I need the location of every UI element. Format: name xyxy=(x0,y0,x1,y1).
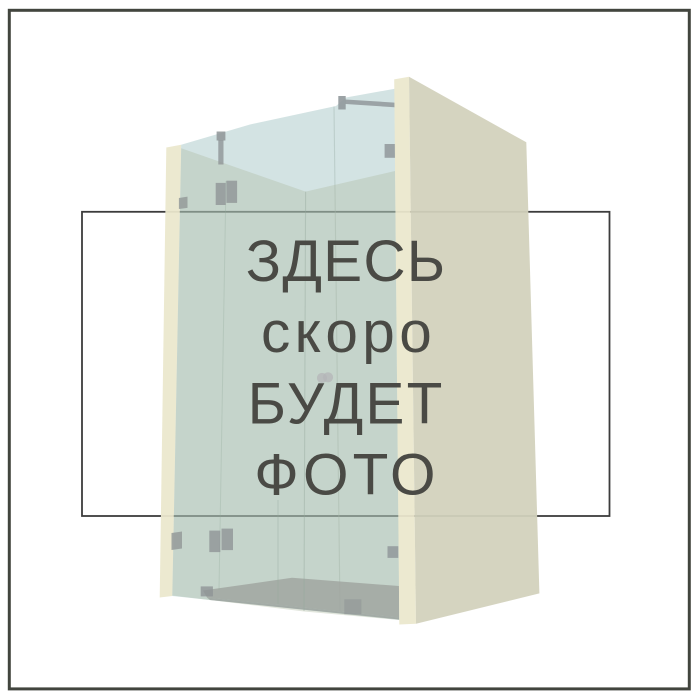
svg-text:ЗДЕСЬ: ЗДЕСЬ xyxy=(246,229,447,294)
svg-text:БУДЕТ: БУДЕТ xyxy=(248,371,445,436)
svg-text:ФОТО: ФОТО xyxy=(254,443,439,508)
svg-text:скоро: скоро xyxy=(261,300,436,365)
